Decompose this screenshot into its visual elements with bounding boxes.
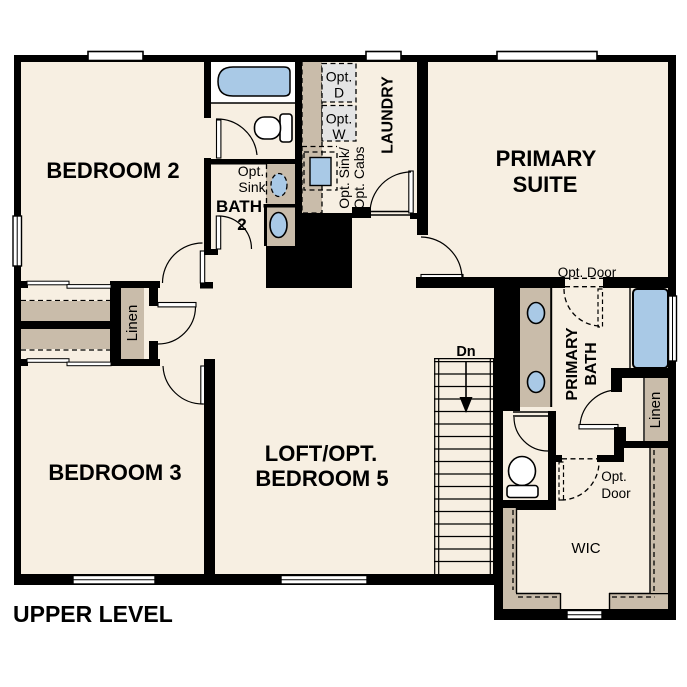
- svg-text:Sink: Sink: [238, 179, 266, 195]
- svg-text:UPPER LEVEL: UPPER LEVEL: [13, 601, 173, 627]
- svg-text:W: W: [332, 126, 346, 142]
- svg-text:BEDROOM 5: BEDROOM 5: [255, 466, 388, 491]
- svg-text:BEDROOM 3: BEDROOM 3: [48, 460, 181, 485]
- svg-text:Opt. Door: Opt. Door: [558, 265, 617, 280]
- svg-text:LAUNDRY: LAUNDRY: [380, 76, 397, 154]
- svg-text:Door: Door: [601, 486, 631, 501]
- svg-text:Opt.: Opt.: [238, 163, 264, 179]
- svg-text:Opt. Cabs: Opt. Cabs: [351, 146, 367, 209]
- svg-text:WIC: WIC: [571, 540, 600, 557]
- svg-text:LOFT/OPT.: LOFT/OPT.: [265, 441, 377, 466]
- svg-text:PRIMARY: PRIMARY: [496, 146, 597, 171]
- svg-text:SUITE: SUITE: [513, 172, 578, 197]
- svg-text:Linen: Linen: [647, 392, 664, 429]
- svg-text:Opt. Sink/: Opt. Sink/: [336, 147, 352, 209]
- svg-text:Linen: Linen: [124, 305, 141, 342]
- svg-text:Opt.: Opt.: [326, 69, 352, 85]
- svg-text:Opt.: Opt.: [601, 469, 627, 484]
- svg-text:BEDROOM 2: BEDROOM 2: [46, 158, 179, 183]
- svg-text:D: D: [334, 85, 344, 101]
- svg-text:2: 2: [237, 215, 246, 234]
- svg-text:BATH: BATH: [216, 197, 262, 216]
- svg-text:BATH: BATH: [583, 342, 600, 385]
- svg-text:Opt.: Opt.: [326, 111, 352, 127]
- svg-text:PRIMARY: PRIMARY: [564, 327, 581, 401]
- svg-text:Dn: Dn: [456, 344, 475, 360]
